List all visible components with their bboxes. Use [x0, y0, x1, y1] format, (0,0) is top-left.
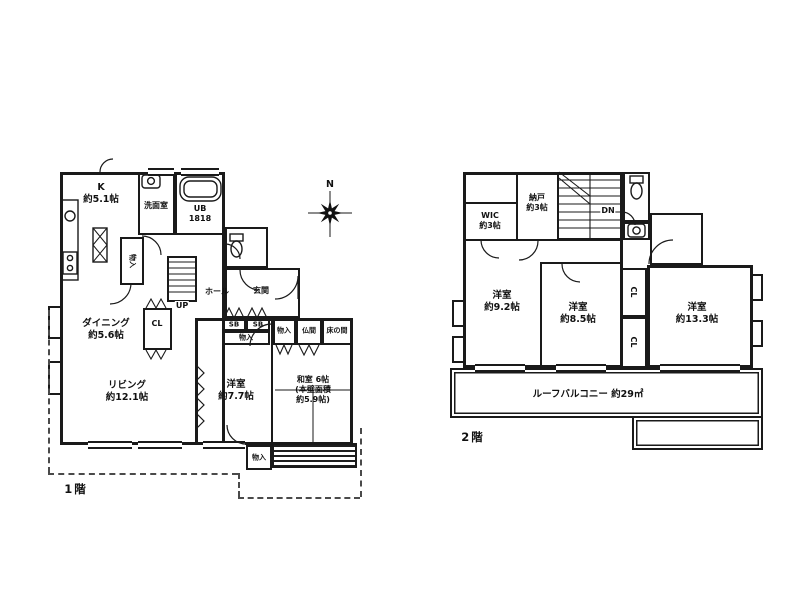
- label-storage-stair: 物入: [128, 254, 137, 268]
- site-outline: [48, 310, 50, 473]
- label-closet-lower: CL: [628, 337, 638, 348]
- label-nando: 納戸 約3帖: [526, 193, 548, 213]
- bay-window: [751, 320, 763, 347]
- label-stairs-up: UP: [175, 301, 189, 311]
- label-roof-balcony: ルーフバルコニー 約29㎡: [533, 389, 644, 401]
- floorplan-canvas: N K 約5.1帖 洗面室 UB 1818 物入 ホール UP 玄関 SB SB…: [0, 0, 800, 600]
- site-outline: [48, 473, 238, 475]
- window: [88, 441, 132, 449]
- window: [556, 364, 606, 372]
- label-closet-upper: CL: [628, 287, 638, 298]
- wall: [516, 172, 518, 240]
- label-storage-entrance: 物入: [239, 334, 253, 343]
- label-japanese-room: 和室 6帖 (本壁面積 約5.9帖): [295, 375, 331, 405]
- wall: [540, 262, 623, 264]
- label-kitchen: K 約5.1帖: [83, 182, 119, 206]
- label-dining: ダイニング 約5.6帖: [82, 318, 130, 342]
- site-outline: [238, 497, 360, 499]
- window: [660, 364, 740, 372]
- label-floor2-title: 2階: [461, 430, 485, 444]
- label-bedroom-east: 洋室 約13.3帖: [676, 302, 718, 326]
- bay-window: [48, 361, 62, 395]
- window: [203, 441, 245, 449]
- label-entrance: 玄関: [253, 286, 269, 296]
- wall: [463, 239, 623, 241]
- f1-veranda: [272, 443, 357, 468]
- label-floor1-title: 1階: [64, 482, 88, 496]
- bay-window: [452, 300, 465, 327]
- f2-toilet: [623, 172, 650, 222]
- wall: [540, 263, 542, 368]
- f2-basin: [623, 222, 650, 240]
- label-bedroom-west: 洋室 約9.2帖: [484, 290, 520, 314]
- f1-toilet: [225, 227, 268, 268]
- site-outline: [360, 428, 362, 497]
- f1-closet: [143, 308, 172, 350]
- label-washroom: 洗面室: [144, 201, 168, 211]
- wall: [271, 318, 273, 445]
- label-shoebox-left: SB: [229, 321, 239, 330]
- window: [148, 168, 174, 176]
- label-compass-n: N: [326, 179, 334, 191]
- compass-icon: [308, 191, 352, 237]
- label-living: リビング 約12.1帖: [106, 380, 148, 404]
- label-closet-f1: CL: [152, 319, 163, 329]
- window: [475, 364, 525, 372]
- site-outline: [238, 473, 240, 497]
- bay-window: [48, 306, 62, 339]
- label-bedroom-center: 洋室 約8.5帖: [560, 302, 596, 326]
- label-stairs-down: DN: [600, 206, 615, 216]
- label-butsuma: 仏間: [302, 327, 316, 336]
- f2-landing: [650, 213, 703, 265]
- label-shoebox-right: SB: [253, 321, 263, 330]
- label-hall: ホール: [205, 287, 229, 297]
- window: [181, 168, 219, 176]
- label-bath: UB 1818: [189, 204, 211, 224]
- window: [138, 441, 182, 449]
- wall: [463, 202, 517, 204]
- label-storage-washitsu: 物入: [277, 327, 291, 336]
- label-western-room: 洋室 約7.7帖: [218, 379, 254, 403]
- label-wic: WIC 約3帖: [479, 211, 501, 231]
- bay-window: [751, 274, 763, 301]
- label-tokonoma: 床の間: [327, 327, 348, 336]
- label-storage-south: 物入: [252, 454, 266, 463]
- f1-stairs: [167, 256, 197, 302]
- f2-roof-balcony-extension: [632, 416, 763, 450]
- bay-window: [452, 336, 465, 363]
